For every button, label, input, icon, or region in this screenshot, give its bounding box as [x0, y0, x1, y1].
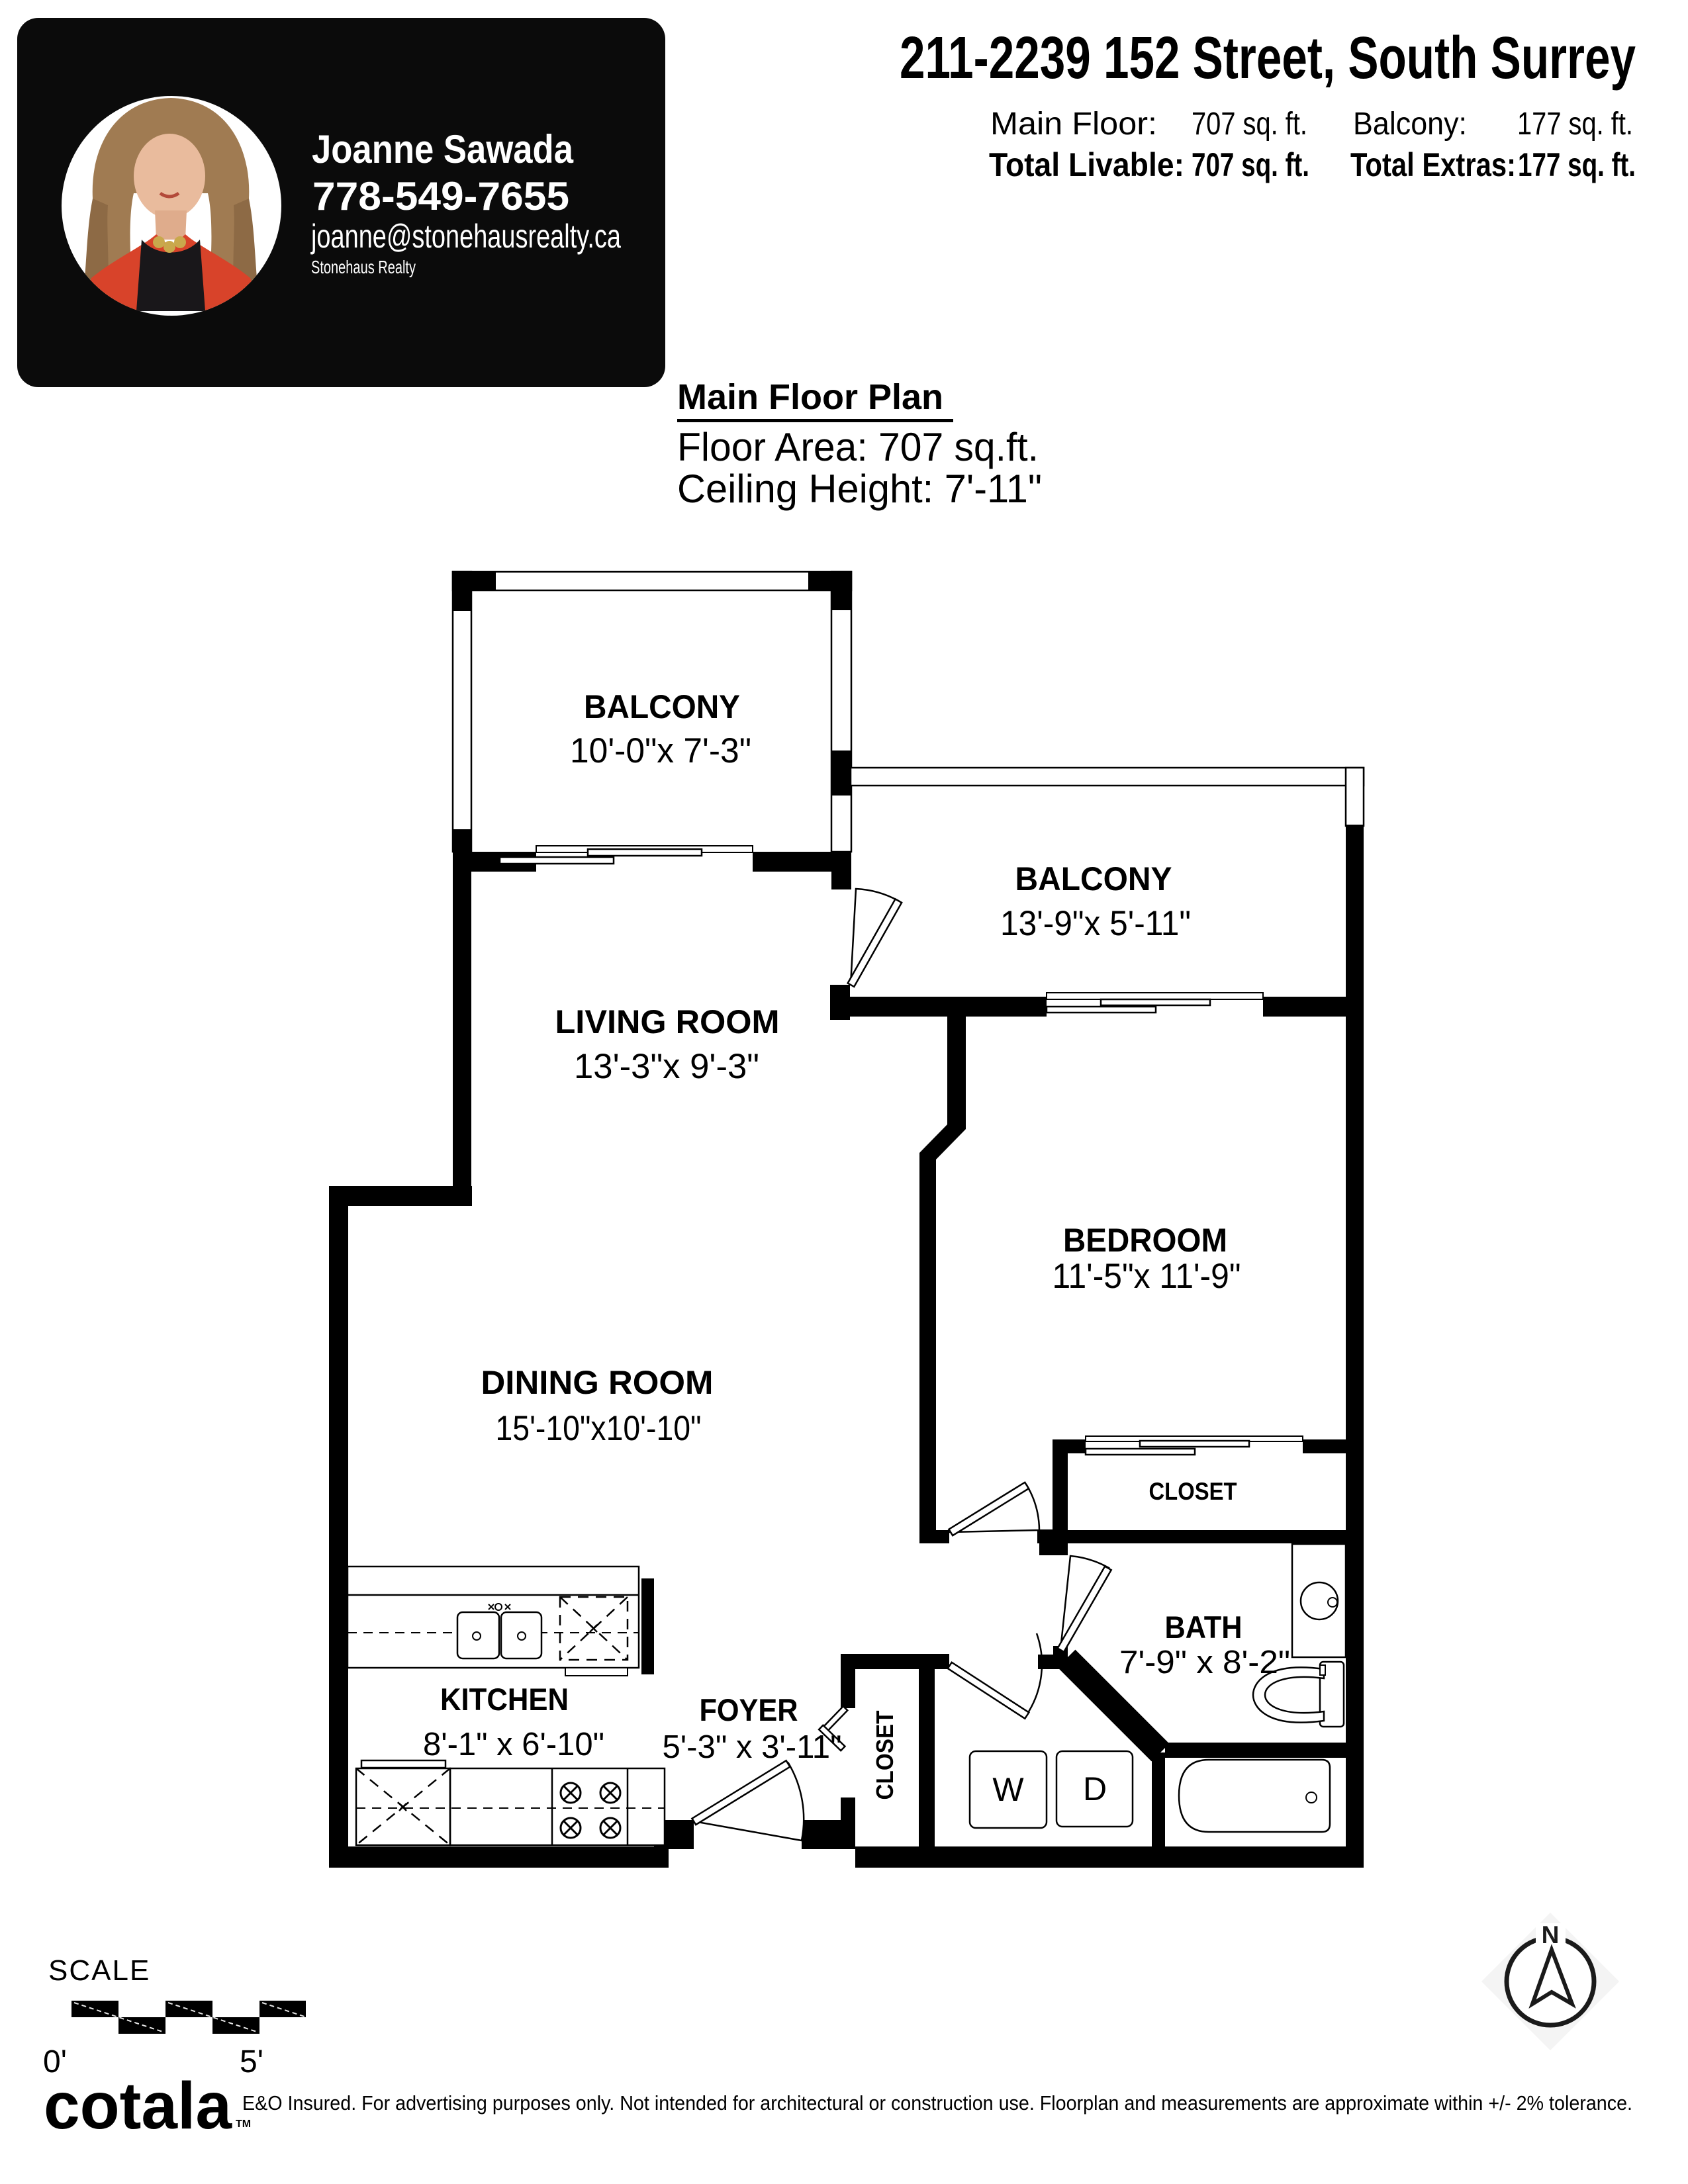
svg-text:707 sq. ft.: 707 sq. ft. [1192, 146, 1309, 183]
svg-text:Main Floor Plan: Main Floor Plan [677, 377, 943, 417]
svg-text:W: W [992, 1771, 1024, 1808]
svg-text:15'-10"x10'-10": 15'-10"x10'-10" [496, 1409, 702, 1448]
svg-text:211-2239 152 Street, South Sur: 211-2239 152 Street, South Surrey [900, 25, 1636, 91]
svg-text:Total Extras:: Total Extras: [1350, 146, 1516, 183]
svg-text:Main Floor:: Main Floor: [990, 107, 1157, 142]
svg-text:LIVING ROOM: LIVING ROOM [555, 1003, 780, 1040]
svg-text:N: N [1542, 1921, 1560, 1948]
svg-text:177 sq. ft.: 177 sq. ft. [1518, 146, 1636, 183]
svg-text:778-549-7655: 778-549-7655 [312, 174, 569, 218]
svg-text:7'-9" x 8'-2": 7'-9" x 8'-2" [1119, 1645, 1290, 1680]
svg-text:FOYER: FOYER [700, 1692, 798, 1727]
svg-text:13'-3"x 9'-3": 13'-3"x 9'-3" [574, 1047, 759, 1086]
svg-text:5': 5' [240, 2044, 263, 2079]
svg-text:BATH: BATH [1165, 1610, 1243, 1645]
svg-text:Stonehaus Realty: Stonehaus Realty [311, 257, 416, 277]
svg-text:D: D [1083, 1770, 1107, 1807]
svg-text:CLOSET: CLOSET [871, 1711, 898, 1800]
svg-text:DINING ROOM: DINING ROOM [481, 1364, 714, 1401]
svg-text:BALCONY: BALCONY [584, 688, 740, 725]
svg-text:KITCHEN: KITCHEN [440, 1682, 569, 1717]
svg-text:Total Livable:: Total Livable: [989, 146, 1184, 183]
svg-text:5'-3" x 3'-11": 5'-3" x 3'-11" [663, 1729, 842, 1765]
svg-text:CLOSET: CLOSET [1149, 1478, 1237, 1505]
svg-text:Joanne Sawada: Joanne Sawada [312, 127, 574, 171]
svg-text:707 sq. ft.: 707 sq. ft. [1192, 107, 1307, 142]
svg-text:Floor Area: 707 sq.ft.: Floor Area: 707 sq.ft. [677, 425, 1039, 469]
svg-text:SCALE: SCALE [48, 1954, 150, 1987]
svg-text:177 sq. ft.: 177 sq. ft. [1517, 107, 1633, 142]
svg-text:11'-5"x 11'-9": 11'-5"x 11'-9" [1053, 1257, 1241, 1296]
svg-text:13'-9"x 5'-11": 13'-9"x 5'-11" [1000, 904, 1191, 943]
svg-text:joanne@stonehausrealty.ca: joanne@stonehausrealty.ca [310, 218, 621, 255]
svg-text:TM: TM [236, 2118, 251, 2130]
svg-text:BEDROOM: BEDROOM [1063, 1222, 1227, 1259]
svg-text:Balcony:: Balcony: [1353, 107, 1467, 142]
svg-text:Ceiling Height: 7'-11": Ceiling Height: 7'-11" [677, 467, 1042, 511]
svg-text:BALCONY: BALCONY [1015, 860, 1172, 897]
svg-text:cotala: cotala [44, 2069, 232, 2143]
svg-text:8'-1" x 6'-10": 8'-1" x 6'-10" [423, 1727, 604, 1762]
svg-text:E&O Insured. For advertising p: E&O Insured. For advertising purposes on… [242, 2091, 1632, 2115]
svg-text:10'-0"x 7'-3": 10'-0"x 7'-3" [570, 731, 751, 770]
